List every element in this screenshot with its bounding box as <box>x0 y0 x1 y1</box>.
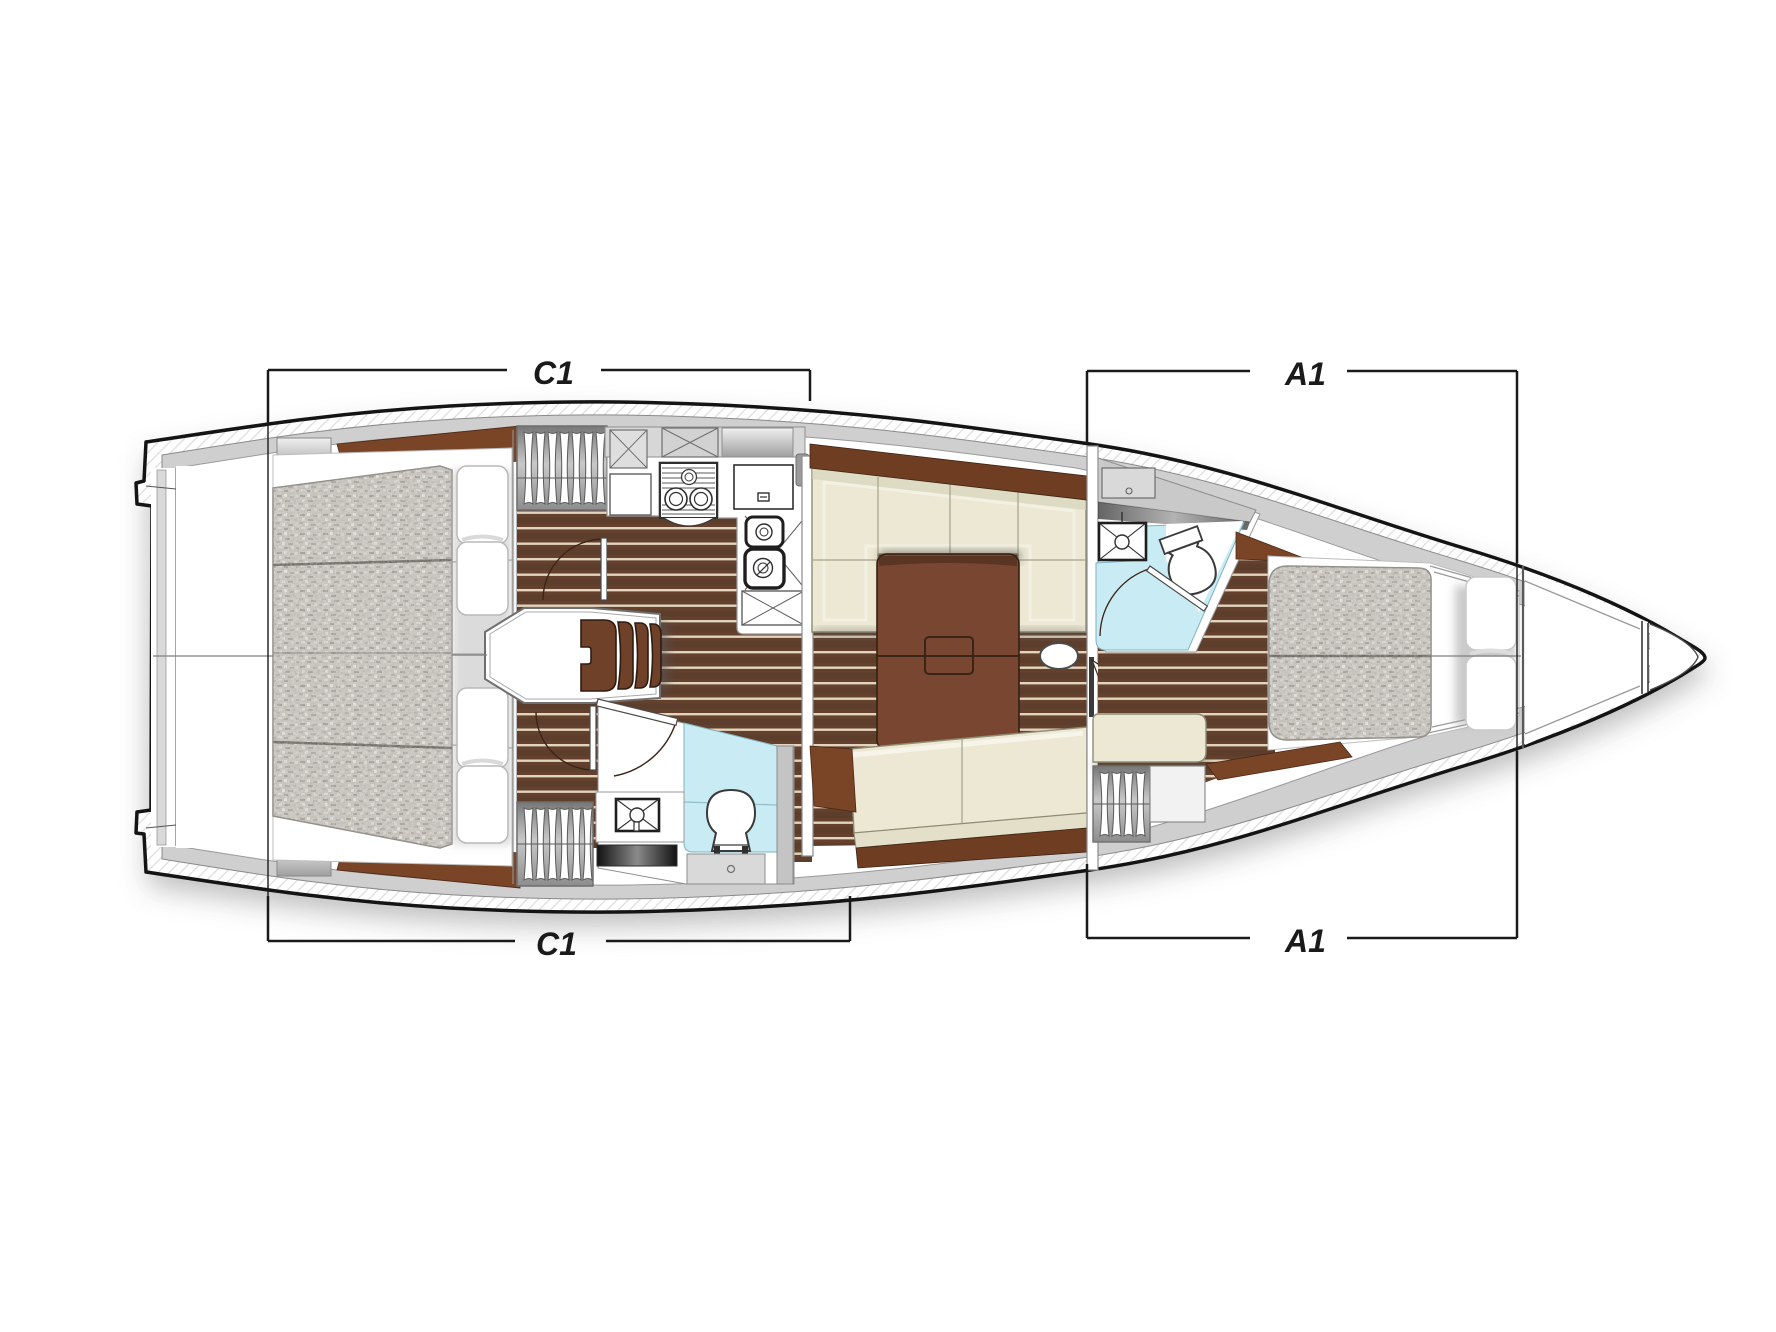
svg-text:C1: C1 <box>533 355 574 391</box>
svg-text:A1: A1 <box>1284 356 1326 392</box>
svg-text:A1: A1 <box>1284 923 1326 959</box>
svg-text:C1: C1 <box>536 926 577 962</box>
